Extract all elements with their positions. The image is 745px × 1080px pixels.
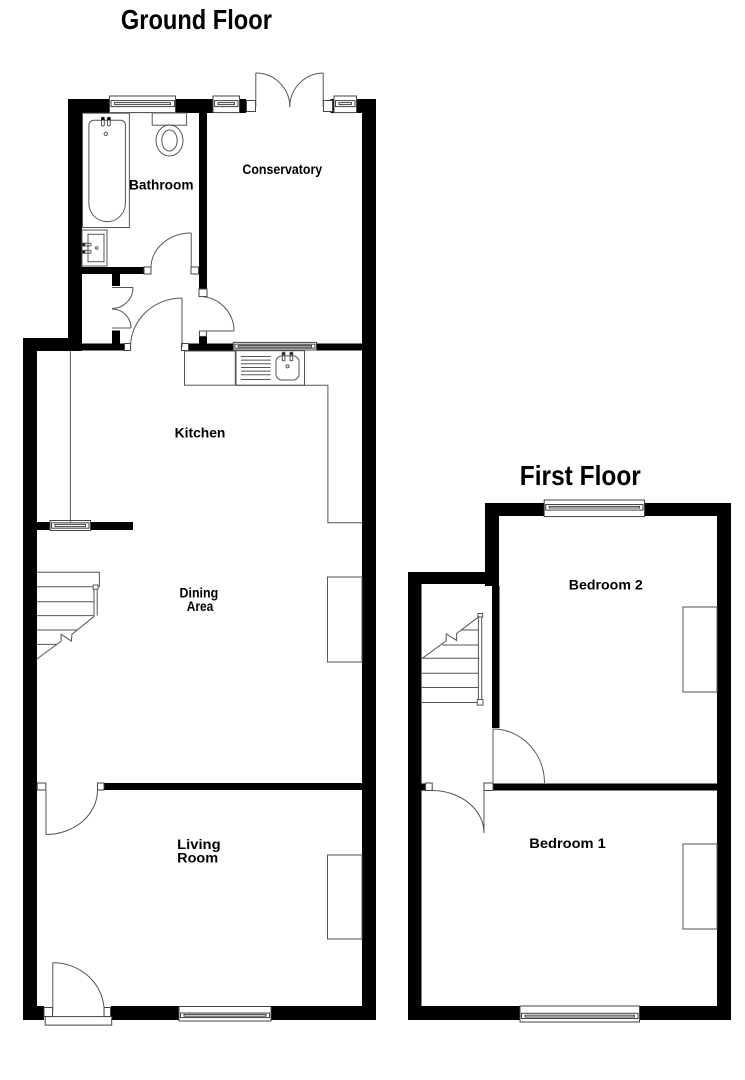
- svg-text:First Floor: First Floor: [520, 460, 641, 491]
- svg-text:Area: Area: [187, 599, 214, 614]
- svg-text:Bedroom 2: Bedroom 2: [569, 577, 643, 592]
- svg-text:Kitchen: Kitchen: [175, 426, 226, 441]
- svg-text:Conservatory: Conservatory: [242, 162, 322, 177]
- svg-text:Bedroom 1: Bedroom 1: [529, 836, 606, 851]
- svg-text:Ground Floor: Ground Floor: [121, 4, 272, 35]
- svg-text:Room: Room: [177, 850, 218, 865]
- svg-text:Bathroom: Bathroom: [129, 178, 194, 193]
